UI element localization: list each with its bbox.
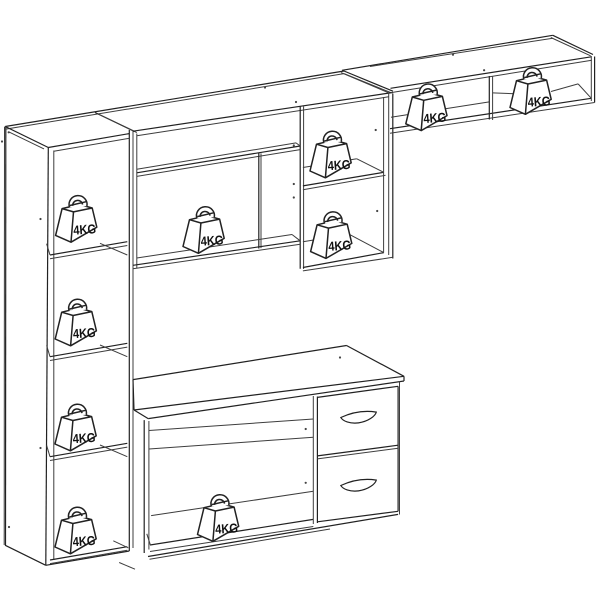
svg-text:4KG: 4KG (215, 520, 239, 537)
svg-text:4KG: 4KG (72, 533, 96, 550)
svg-text:4KG: 4KG (200, 232, 224, 249)
svg-text:4KG: 4KG (73, 221, 97, 238)
svg-text:4KG: 4KG (527, 93, 551, 110)
svg-text:4KG: 4KG (328, 237, 352, 254)
svg-text:4KG: 4KG (72, 325, 96, 342)
svg-text:4KG: 4KG (423, 110, 447, 127)
svg-text:4KG: 4KG (327, 157, 351, 174)
svg-text:4KG: 4KG (72, 430, 96, 447)
